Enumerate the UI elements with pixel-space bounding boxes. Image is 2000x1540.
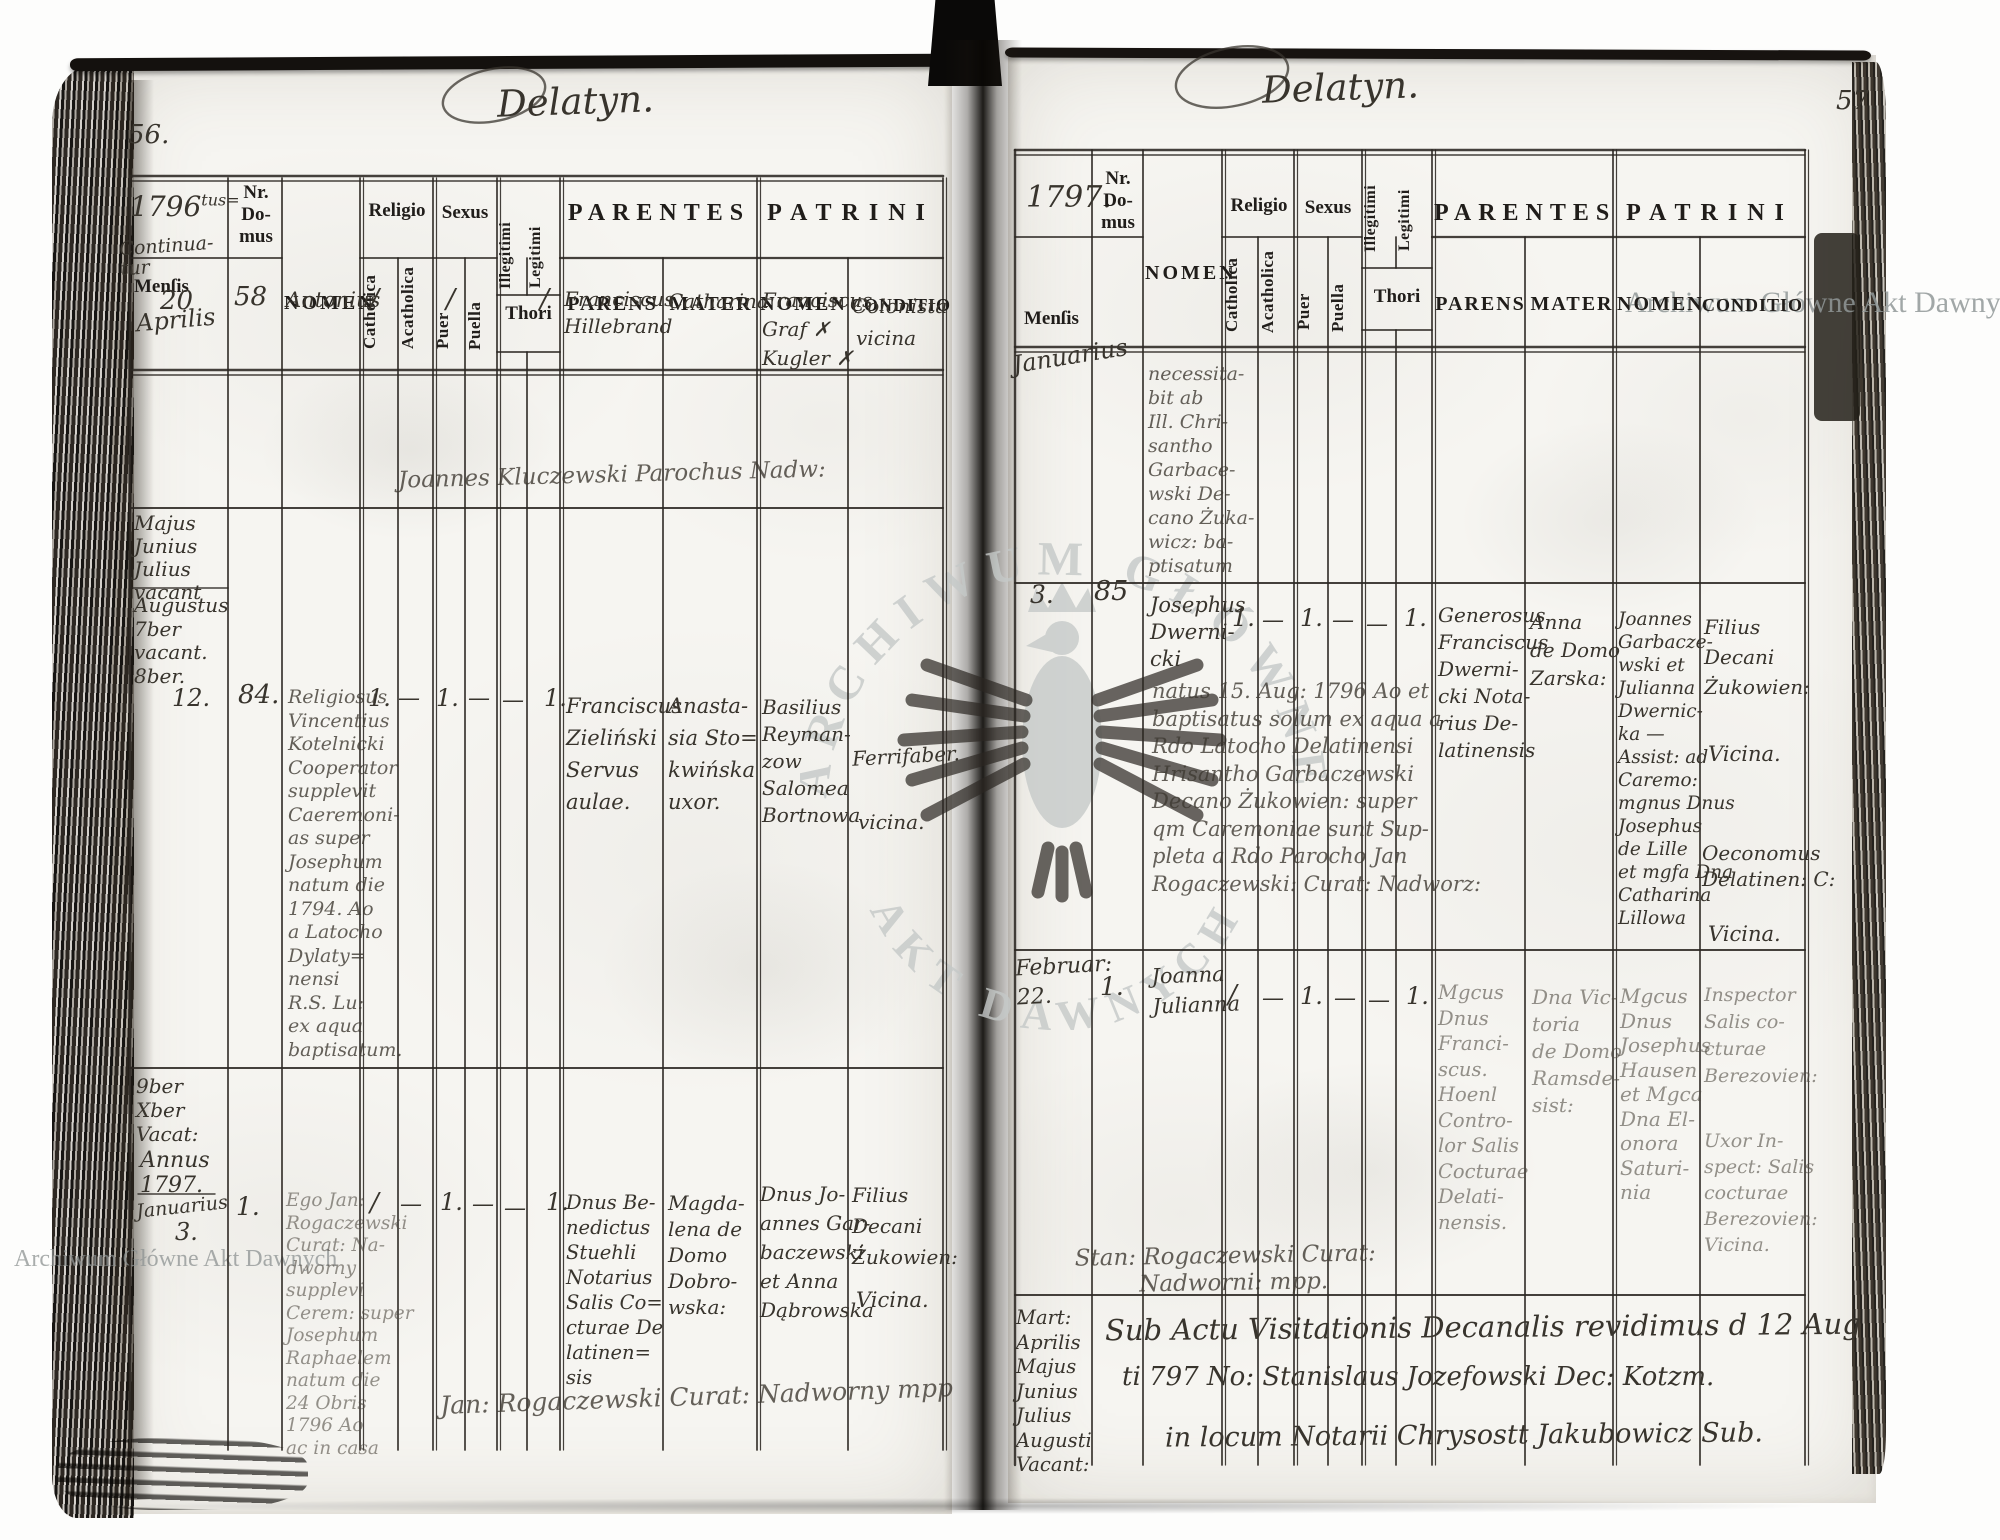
entry-conditio-vicina: vicina [856, 326, 916, 350]
entry-parens: FranciscusZielińskiServusaulae. [566, 690, 682, 818]
col-header-nr-right: Nr.Do-mus [1094, 168, 1142, 234]
mark-acatholica: — [1262, 608, 1284, 633]
entry-conditio: InspectorSalis co-cturaeBerezovien: [1704, 982, 1818, 1090]
mark-legitimi: 1. [1404, 604, 1427, 632]
col-header-acatholica-right: Acatholica [1258, 244, 1294, 340]
col-header-sexus-right: Sexus [1296, 197, 1360, 219]
margin-months: MajusJuniusJuliusvacant [134, 512, 201, 604]
visitation-note-line: in locum Notarii Chrysostt Jakubowicz Su… [1165, 1417, 1763, 1453]
mark-puella: — [1334, 986, 1356, 1011]
priest-signature-right: Stan: Rogaczewski Curat:Nadworni: mpp. [1075, 1240, 1377, 1299]
mark-catholica: 1. [368, 684, 391, 712]
entry-conditio: FiliusDecaniŻukowien: [852, 1180, 958, 1273]
col-header-patrini-nomen-right: NOMEN [1617, 293, 1700, 316]
entry-nr: 58 [234, 282, 267, 312]
entry-conditio: FiliusDecaniŻukowien: [1704, 612, 1810, 702]
entry-conditio-vicina: Vicina. [1708, 742, 1781, 766]
col-header-nr-left: Nr.Do-mus [230, 182, 282, 248]
entry-nr: 1. [1100, 972, 1124, 1001]
entry-nomen-continuation: necessita-bit abIll. Chri-santhoGarbace-… [1148, 362, 1254, 578]
mark-catholica: / [1228, 980, 1237, 1010]
mark-acatholica: — [400, 1192, 422, 1217]
col-header-thori-right: Thori [1362, 286, 1432, 308]
entry-nr: 85 [1094, 576, 1128, 607]
entry-patrini-nomen: MgcusDnusJosephusHausenet MgcaDna El-ono… [1620, 984, 1711, 1205]
mark-acatholica: — [398, 686, 420, 711]
register-title-right: Delatyn. [1261, 63, 1419, 111]
margin-months: Augustus7bervacant.8ber. [134, 594, 228, 688]
col-header-sexus-left: Sexus [434, 202, 496, 224]
margin-annus: Annus1797. [140, 1148, 210, 1198]
col-header-parens-right: PARENS [1434, 293, 1527, 316]
col-header-parentes-left: PARENTES [562, 200, 756, 227]
mark-puer: 1. [1300, 982, 1323, 1010]
col-header-mater-right: MATER [1529, 293, 1615, 316]
entry-parens: MgcusDnusFranci-scus.HoenlContro-lor Sal… [1438, 980, 1528, 1235]
mark-legitimi: / [540, 284, 549, 315]
entry-dies: 12. [172, 684, 210, 712]
mark-puella: — [468, 686, 490, 711]
continuatur-note-left: Continua-tur [119, 233, 216, 279]
entry-dies: 20 [160, 286, 193, 316]
entry-nomen-wide-note: natus 15. Aug: 1796 Ao etbaptisatus solu… [1152, 678, 1481, 898]
entry-conditio-vicina: vicina. [858, 810, 924, 834]
mark-puer: / [446, 284, 455, 315]
visitation-note-line: Sub Actu Visitationis Decanalis revidimu… [1105, 1307, 1861, 1348]
entry-conditio-2: Uxor In-spect: SaliscocturaeBerezovien:V… [1704, 1128, 1818, 1258]
scanned-parish-register: ARCHIWUM GŁÓWNE AKT DAWNYCH [0, 0, 2000, 1540]
visitation-note-line: ti 797 No: Stanislaus Jozefowski Dec: Ko… [1122, 1362, 1714, 1392]
register-title-left: Delatyn. [496, 77, 654, 125]
mark-puer: 1. [436, 684, 459, 712]
entry-mater: Magda-lena deDomoDobro-wska: [668, 1190, 745, 1320]
entry-nomen: Antonius [286, 288, 380, 312]
mark-puer: 1. [440, 1188, 463, 1216]
col-header-acatholica-left: Acatholica [398, 250, 433, 366]
col-header-puer-right: Puer [1294, 284, 1328, 340]
col-header-illegitimi-right: Illegitimi [1362, 172, 1396, 264]
year-left: 1796tus= [130, 190, 240, 223]
col-header-thori-left: Thori [497, 303, 560, 325]
entry-mater: Catharina [668, 288, 769, 315]
mark-illegitimi: — [504, 1196, 526, 1221]
entry-conditio-vicina: Vicina. [856, 1288, 929, 1312]
mark-catholica: / [370, 284, 379, 315]
mark-illegitimi: — [1366, 612, 1388, 637]
entry-parens: FranciscusHillebrand [564, 286, 674, 340]
entry-mater: Annade DomoZarska: [1530, 608, 1620, 692]
entry-nomen: ReligiosusVincentiusKotelnickiCooperator… [288, 686, 402, 1062]
col-header-catholica-right: Catholica [1222, 250, 1258, 340]
mark-illegitimi: — [1368, 988, 1390, 1013]
col-header-puella-right: Puella [1328, 276, 1362, 340]
margin-months: Mart:AprilisMajusJuniusJuliusAugustiVaca… [1016, 1306, 1092, 1478]
mark-puella: — [472, 1192, 494, 1217]
page-number-left: 56. [128, 120, 169, 150]
entry-mater: Anasta-sia Sto=kwińskauxor. [668, 690, 758, 818]
col-header-patrini-left: PATRINI [760, 200, 942, 227]
col-header-mensis-right: Menſis [1024, 308, 1079, 330]
entry-conditio-vicina: Vicina. [1708, 922, 1781, 946]
entry-conditio: Colonista [852, 292, 947, 320]
entry-parens: Dnus Be-nedictusStuehliNotariusSalis Co=… [566, 1190, 663, 1390]
mark-catholica: 1. [1232, 604, 1255, 632]
mark-illegitimi: — [502, 688, 524, 713]
entry-dies: 3. [1030, 580, 1054, 609]
page-number-right: 57. [1836, 86, 1877, 116]
col-header-religio-left: Religio [362, 200, 432, 222]
entry-nomen: Ego Jan:RogaczewskiCurat: Na-dwornysuppl… [286, 1190, 414, 1460]
mark-puer: 1. [1300, 604, 1323, 632]
col-header-religio-right: Religio [1224, 195, 1294, 217]
mark-acatholica: — [1262, 986, 1284, 1011]
mark-catholica: / [370, 1188, 379, 1218]
entry-patrini-nomen: BasiliusReyman-zowSalomeaBortnowa [762, 694, 860, 829]
mark-legitimi: 1. [1406, 982, 1429, 1010]
mark-legitimi: 1. [544, 684, 567, 712]
col-header-conditio-right: CONDITIO [1702, 295, 1803, 316]
col-header-legitimi-right: Legitimi [1396, 176, 1432, 264]
col-header-parentes-right: PARENTES [1434, 200, 1614, 227]
entry-conditio-2: OeconomusDelatinen: C: [1702, 840, 1835, 892]
col-header-patrini-right: PATRINI [1616, 200, 1804, 227]
entry-mater: Dna Vic-toriade DomoRamsde-sist: [1532, 984, 1622, 1119]
col-header-nomen-right: NOMEN [1145, 262, 1221, 285]
margin-months: 9berXberVacat: [136, 1074, 198, 1146]
entry-nr: 84. [238, 680, 279, 710]
entry-dies: 3. [175, 1218, 198, 1246]
col-header-illegitimi-left: Illegitimi [497, 212, 527, 298]
mark-puella: — [1332, 608, 1354, 633]
col-header-puella-left: Puella [465, 286, 497, 366]
entry-nr: 1. [236, 1192, 260, 1221]
